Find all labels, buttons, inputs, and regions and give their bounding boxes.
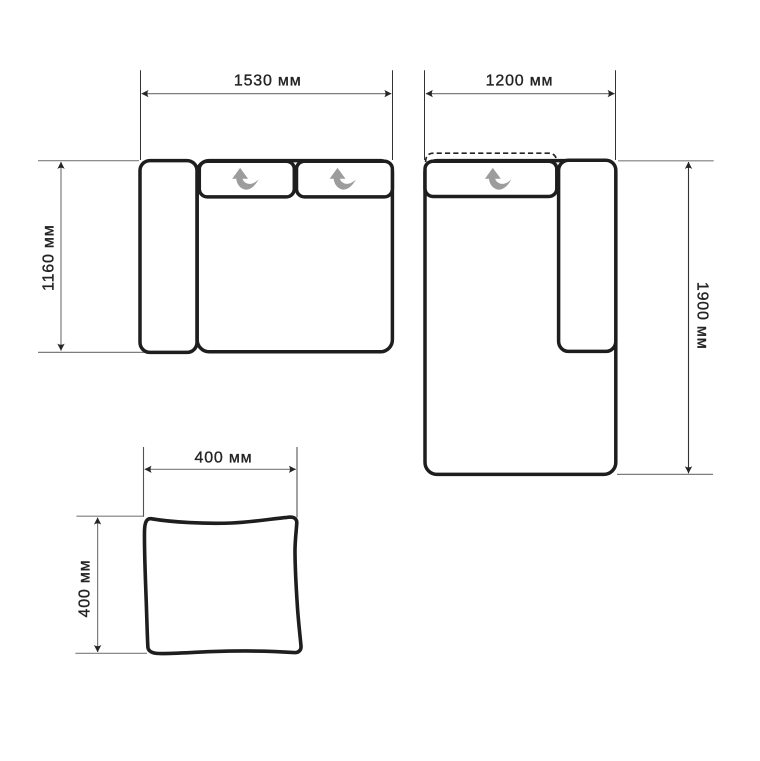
svg-text:400 мм: 400 мм bbox=[76, 560, 93, 618]
svg-text:1530 мм: 1530 мм bbox=[234, 72, 302, 89]
svg-text:1160 мм: 1160 мм bbox=[40, 224, 57, 290]
svg-text:1900 мм: 1900 мм bbox=[694, 282, 711, 350]
svg-text:400 мм: 400 мм bbox=[195, 450, 253, 467]
svg-text:1200 мм: 1200 мм bbox=[486, 72, 554, 89]
